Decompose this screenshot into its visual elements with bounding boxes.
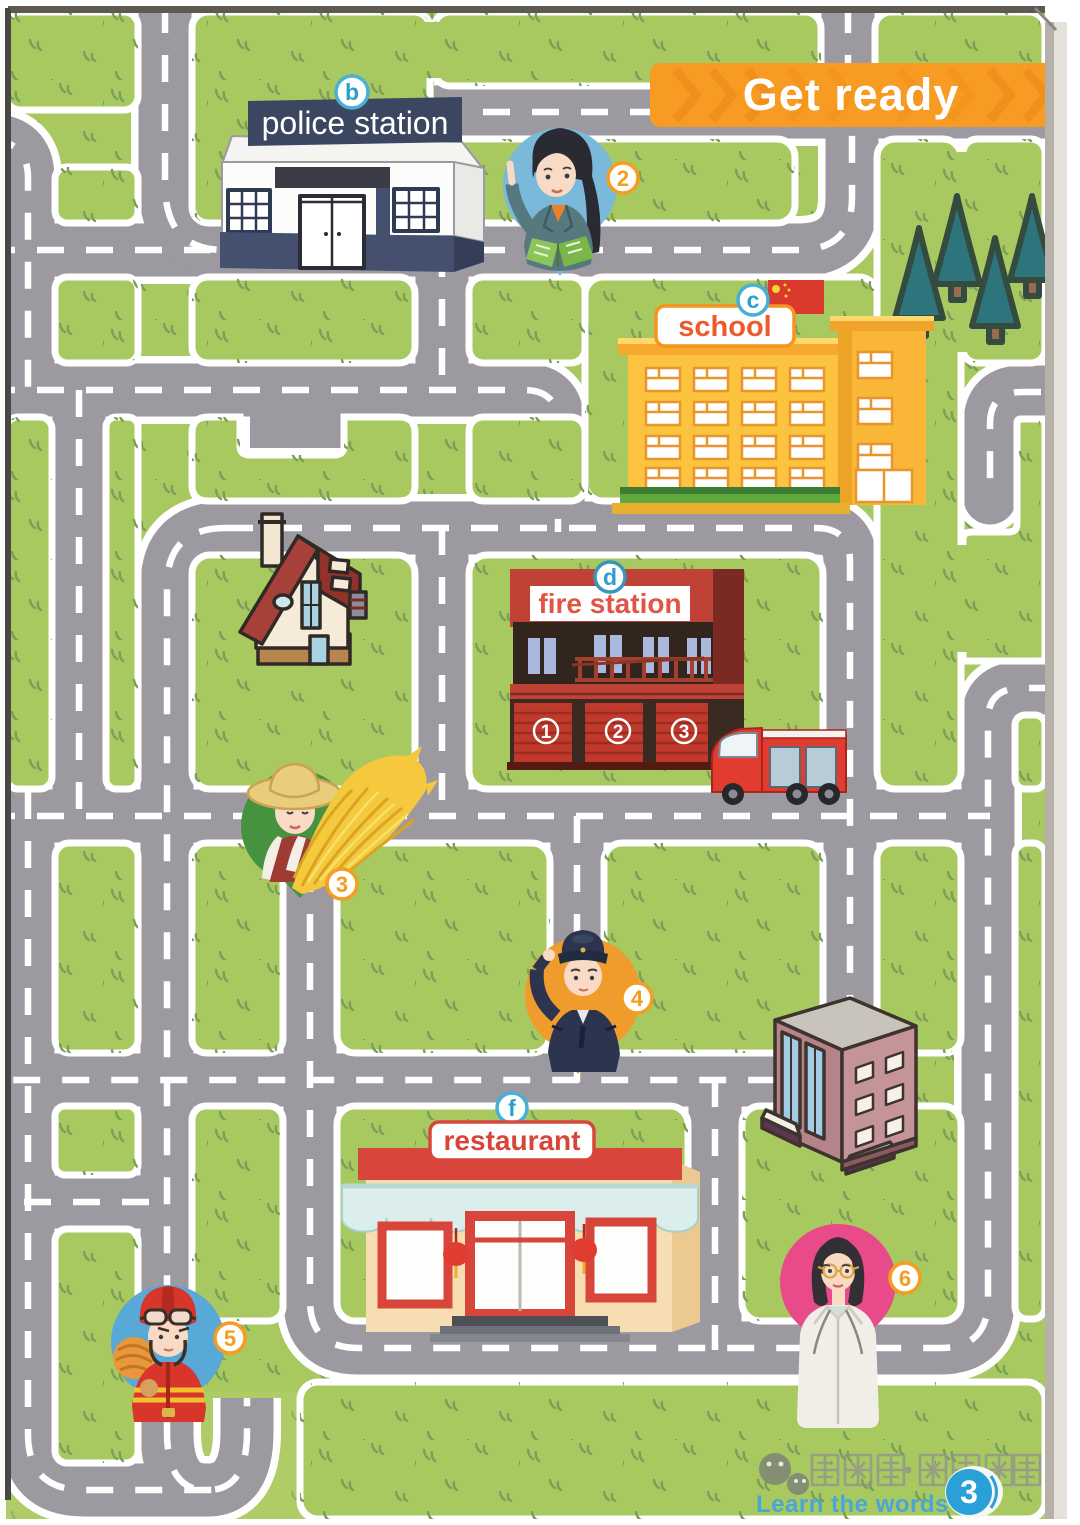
svg-text:f: f [508, 1095, 516, 1121]
svg-text:police station: police station [262, 105, 449, 141]
svg-text:b: b [345, 79, 359, 105]
svg-text:c: c [747, 287, 760, 313]
svg-text:3: 3 [960, 1474, 978, 1510]
svg-text:6: 6 [899, 1266, 911, 1291]
svg-text:1: 1 [541, 722, 552, 743]
svg-text:d: d [603, 564, 617, 590]
svg-text:restaurant: restaurant [444, 1125, 581, 1156]
svg-text:4: 4 [631, 986, 644, 1011]
svg-text:2: 2 [617, 166, 629, 191]
svg-text:3: 3 [336, 872, 348, 897]
svg-text:Learn the words: Learn the words [756, 1491, 949, 1518]
svg-text:3: 3 [679, 722, 690, 743]
svg-text:Get ready: Get ready [743, 69, 960, 120]
svg-text:5: 5 [224, 1326, 236, 1351]
svg-text:2: 2 [613, 722, 624, 743]
